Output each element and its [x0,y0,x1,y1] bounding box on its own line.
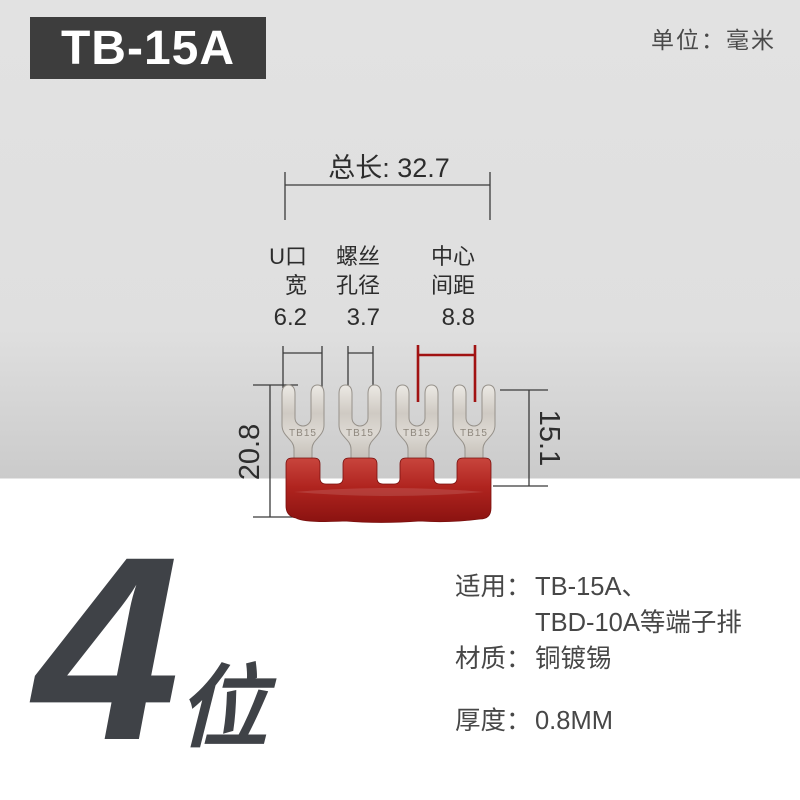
spec-row-value: 0.8MM [535,703,613,739]
spec-column-value: 8.8 [385,303,475,332]
spec-row-thickness: 厚度： 0.8MM [455,703,742,739]
spec-row-value: 铜镀锡 [535,641,612,677]
spec-column-line1: 中心 [385,242,475,271]
position-count: 4 位 [34,549,268,754]
spec-row-label: 材质： [455,641,535,677]
terminal-stamp: TB15 [403,428,431,439]
fork-terminal-2 [339,385,381,466]
spec-row-label: 适用： [455,569,535,641]
product-photo: TB15 TB15 TB15 TB15 [280,380,506,528]
unit-label: 单位：毫米 [651,21,776,55]
spec-column-line1: 螺丝 [290,242,380,271]
spec-row-value-line1: TB-15A、 [535,569,742,605]
terminal-stamp: TB15 [346,428,374,439]
fork-terminal-3 [396,385,438,466]
spec-column-line2: 孔径 [290,271,380,300]
spec-row-value-line2: TBD-10A等端子排 [535,605,742,641]
spec-row-applicable: 适用： TB-15A、 TBD-10A等端子排 [455,569,742,641]
model-banner: TB-15A [30,17,266,79]
spec-column-line2: 间距 [385,271,475,300]
spec-info: 适用： TB-15A、 TBD-10A等端子排 材质： 铜镀锡 厚度： 0.8M… [455,569,742,739]
fork-terminal-1 [282,385,324,466]
spec-row-material: 材质： 铜镀锡 [455,641,742,677]
spec-column-screw-hole: 螺丝 孔径 3.7 [290,242,380,332]
total-length-label: 总长: 32.7 [287,146,491,185]
height-left-label: 20.8 [234,387,266,517]
spec-row-value: TB-15A、 TBD-10A等端子排 [535,569,742,641]
model-banner-label: TB-15A [61,21,235,76]
spec-row-label: 厚度： [455,703,535,739]
terminal-stamp: TB15 [289,428,317,439]
spec-column-center-spacing: 中心 间距 8.8 [385,242,475,332]
position-count-number: 4 [34,549,174,748]
height-right-label: 15.1 [533,373,565,503]
position-count-unit: 位 [178,664,268,754]
product-spec-page: { "header": { "model": "TB-15A", "unit_l… [0,0,800,800]
spec-column-value: 3.7 [290,303,380,332]
fork-terminal-4 [453,385,495,466]
terminal-stamp: TB15 [460,428,488,439]
